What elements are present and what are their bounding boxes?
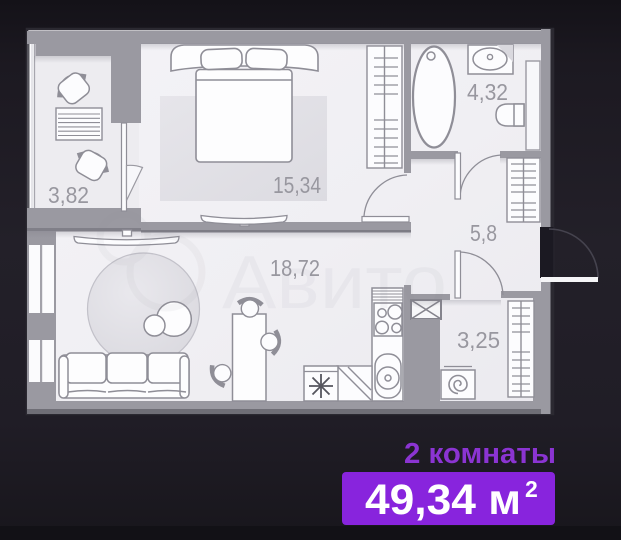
svg-text:18,72: 18,72 [270, 255, 320, 281]
svg-text:5,8: 5,8 [470, 220, 497, 246]
svg-text:3,25: 3,25 [457, 327, 500, 353]
svg-text:Авито: Авито [222, 240, 447, 324]
svg-text:3,82: 3,82 [48, 182, 89, 208]
svg-text:4,32: 4,32 [467, 79, 508, 105]
svg-text:49,34 м: 49,34 м [365, 476, 521, 524]
svg-text:2: 2 [525, 476, 538, 502]
svg-text:15,34: 15,34 [273, 172, 321, 198]
svg-text:2 комнаты: 2 комнаты [404, 438, 556, 470]
